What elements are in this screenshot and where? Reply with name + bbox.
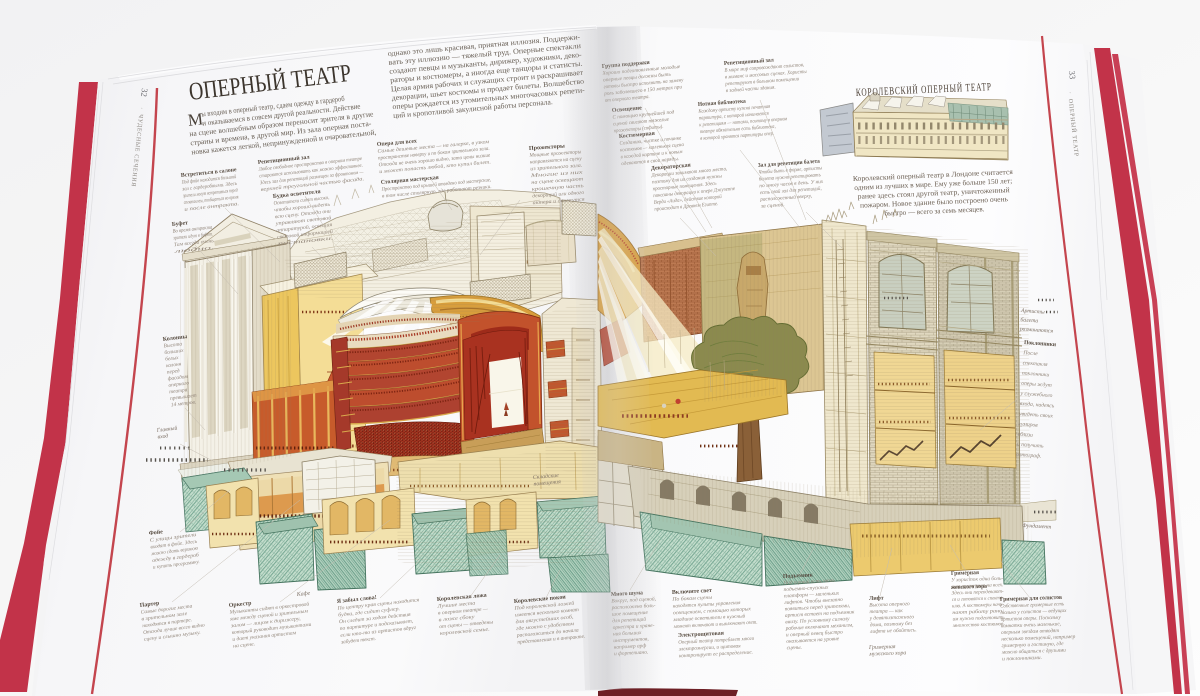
svg-text:женского хора: женского хора bbox=[951, 584, 987, 591]
svg-text:После: После bbox=[1022, 350, 1038, 357]
svg-text:Лифт: Лифт bbox=[869, 594, 884, 602]
svg-text:вблизи: вблизи bbox=[1017, 431, 1033, 439]
svg-text:33: 33 bbox=[1067, 70, 1078, 79]
svg-text:32: 32 bbox=[139, 88, 150, 97]
svg-text:балета: балета bbox=[1020, 316, 1038, 324]
svg-text:сцены.: сцены. bbox=[787, 645, 803, 652]
svg-text:вход: вход bbox=[157, 432, 169, 440]
